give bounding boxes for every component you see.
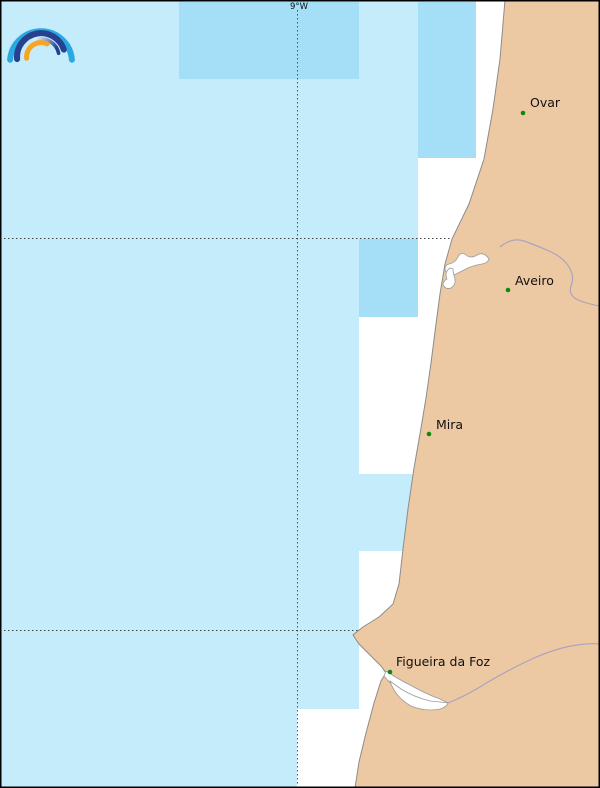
grid-cell-highlight[interactable] <box>418 2 476 158</box>
grid-cell-highlight[interactable] <box>359 239 418 317</box>
city-dot <box>388 670 393 675</box>
city-label: Mira <box>436 417 463 432</box>
city-label: Ovar <box>530 95 561 110</box>
city-label: Figueira da Foz <box>396 654 491 669</box>
city-dot <box>521 111 526 116</box>
grid-cell-highlight[interactable] <box>179 2 359 79</box>
city-dot <box>427 432 432 437</box>
city-dot <box>506 288 511 293</box>
city-label: Aveiro <box>515 273 554 288</box>
map-canvas[interactable]: Ovar Aveiro Mira Figueira da Foz 9°W <box>0 0 600 788</box>
meridian-label-9w: 9°W <box>290 2 309 12</box>
map-viewport[interactable]: Ovar Aveiro Mira Figueira da Foz 9°W <box>0 0 600 788</box>
